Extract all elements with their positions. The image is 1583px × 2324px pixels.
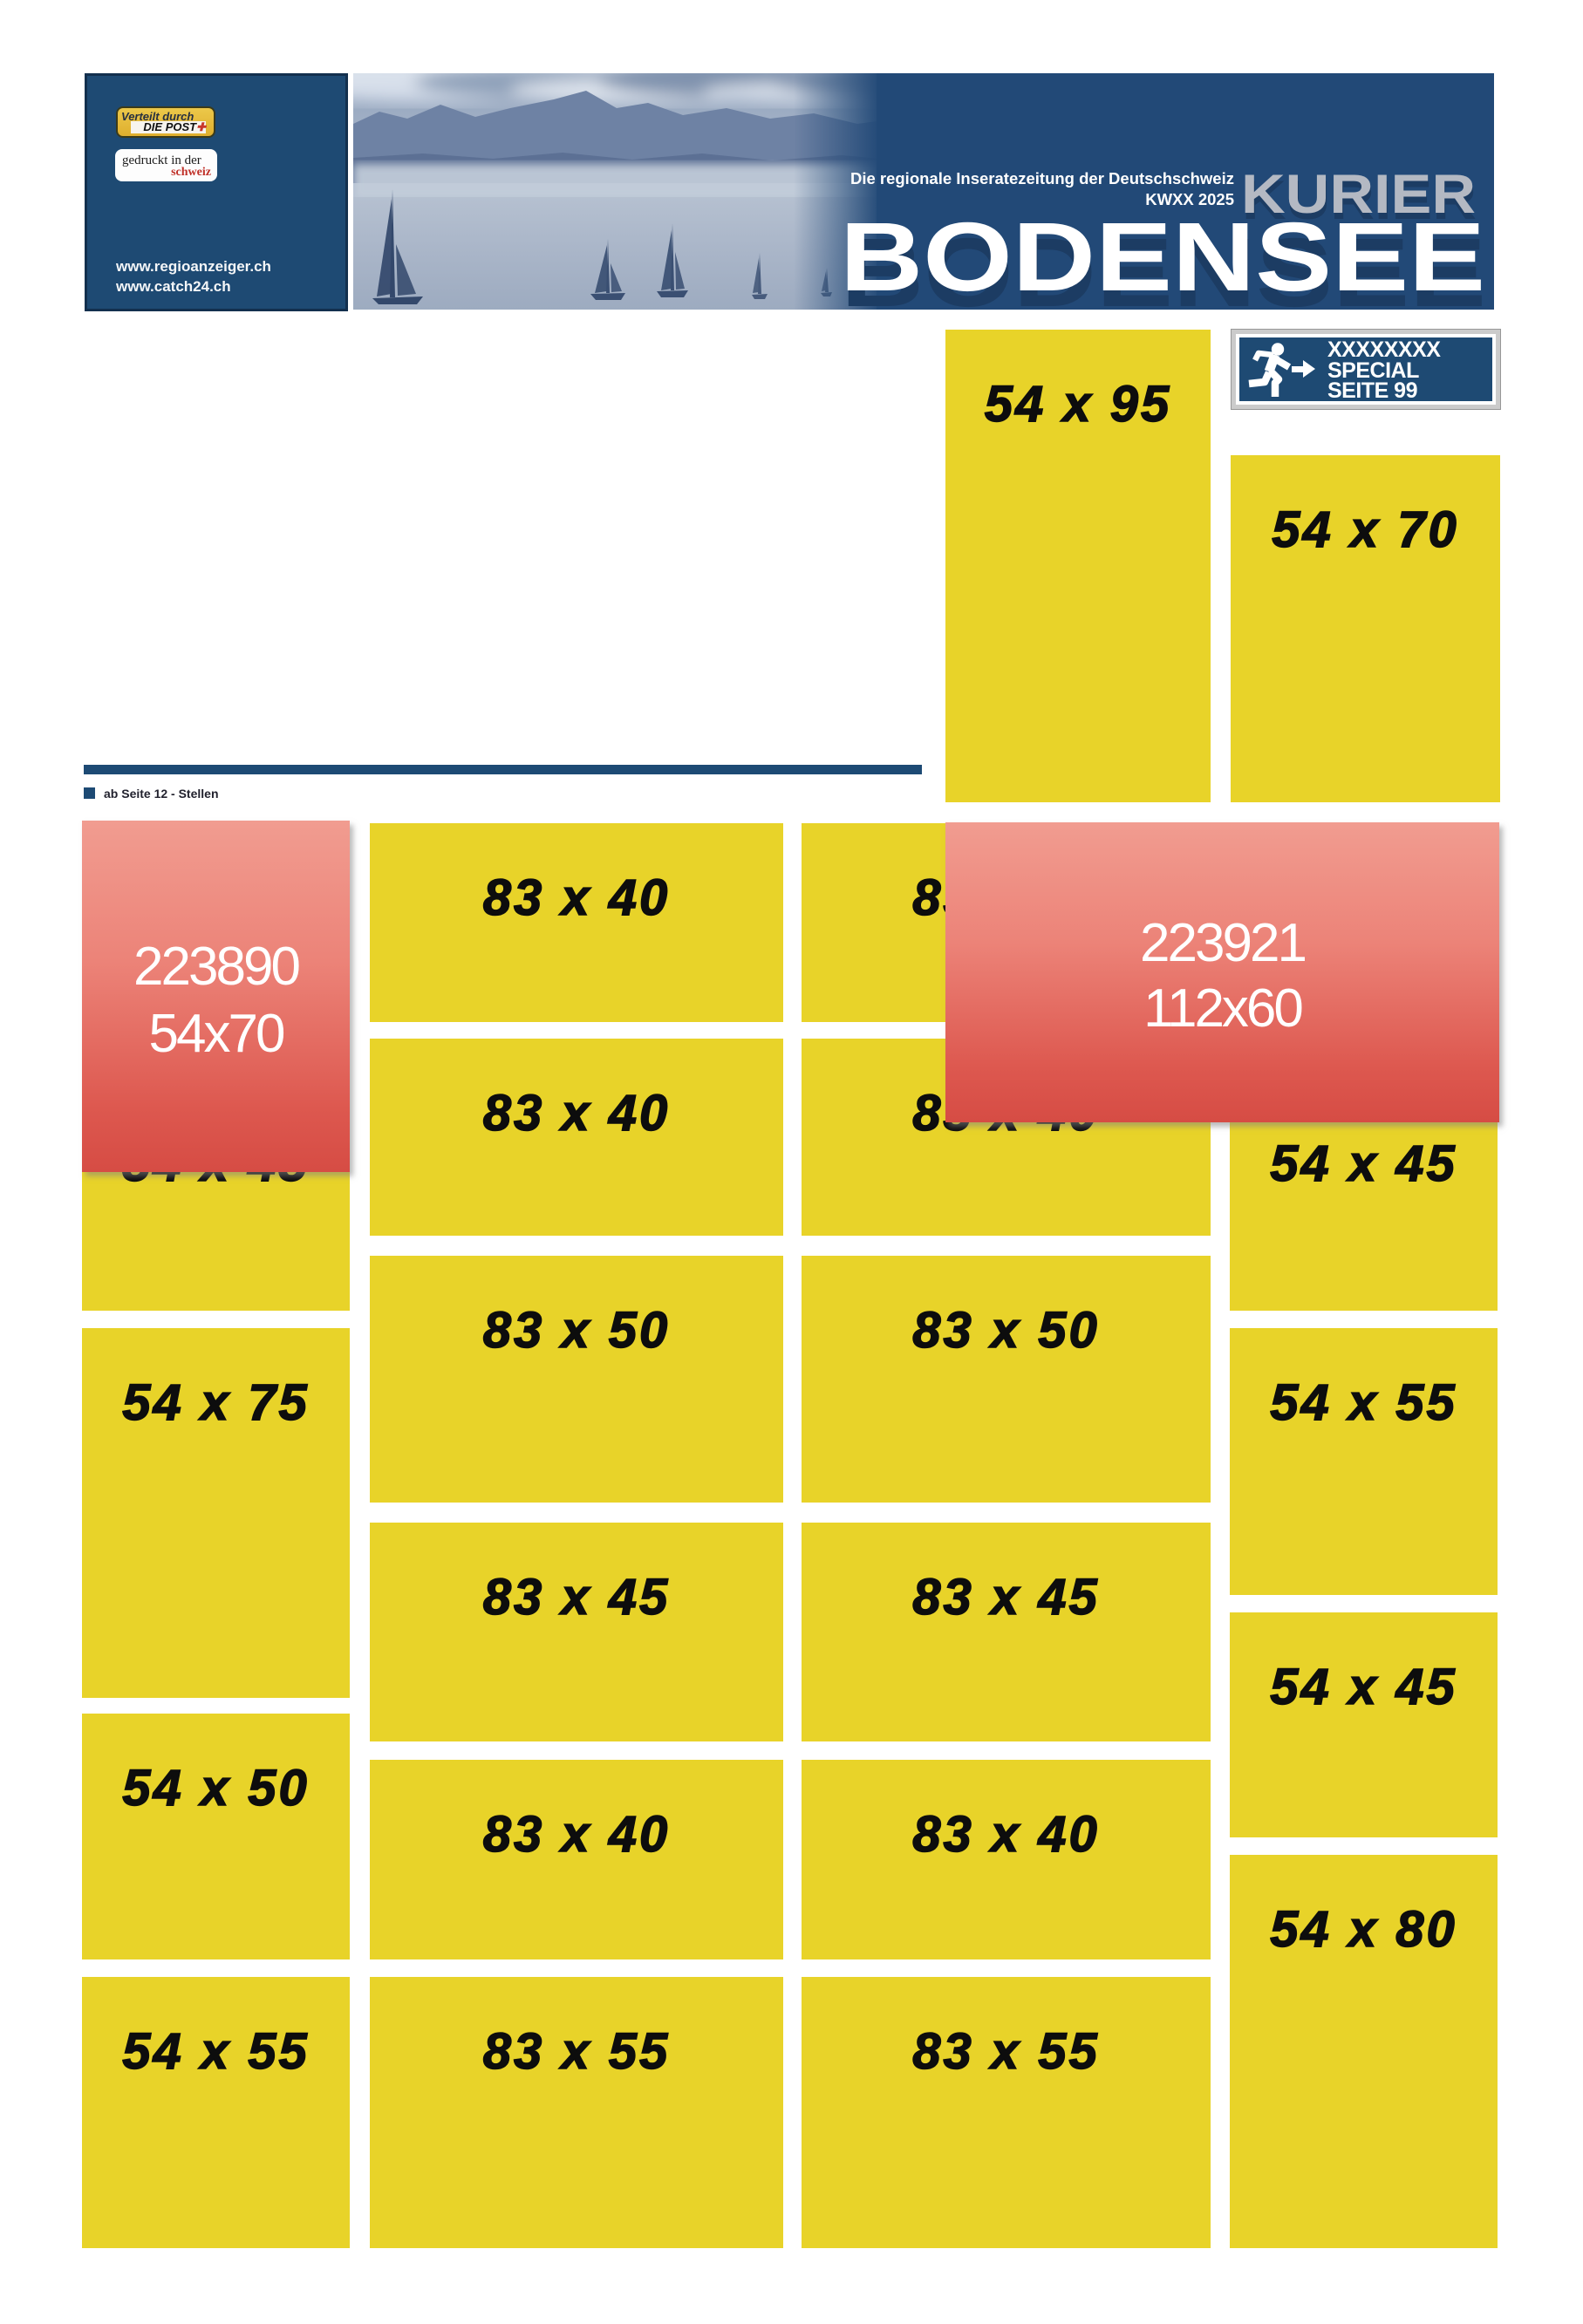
svg-text:Die regionale Inseratezeitung: Die regionale Inseratezeitung der Deutsc… [850, 169, 1234, 187]
svg-text:BODENSEE: BODENSEE [840, 202, 1485, 310]
